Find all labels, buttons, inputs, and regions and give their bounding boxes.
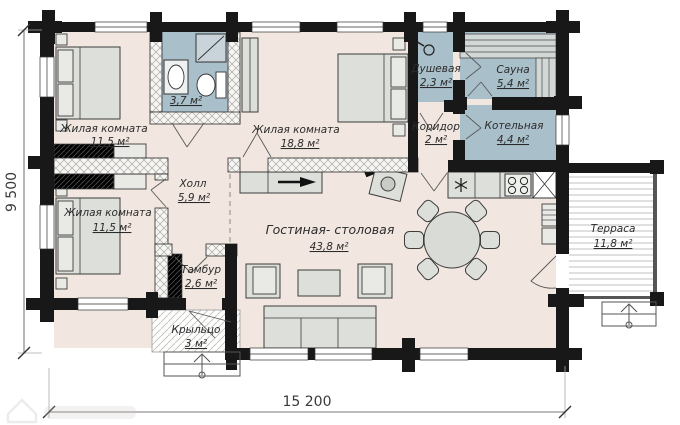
vestibule-label: Тамбур xyxy=(181,264,221,276)
shower-label: Душевая xyxy=(410,63,460,75)
dining-chair xyxy=(481,232,500,249)
armchair xyxy=(358,264,392,298)
corridor-label: Коридор xyxy=(412,121,460,133)
toilet-bowl xyxy=(197,74,215,96)
window xyxy=(78,298,128,310)
bedroom3-label: Жилая комната xyxy=(63,207,151,219)
bedroom1-label: Жилая комната xyxy=(59,123,147,135)
nightstand xyxy=(56,34,67,45)
shower-area: 2,3 м² xyxy=(420,77,453,89)
coffee-table xyxy=(298,270,340,296)
window xyxy=(556,115,569,145)
bed-bedroom1 xyxy=(56,34,120,131)
terrace-label: Терраса xyxy=(591,223,636,235)
bedroom2-area: 18,8 м² xyxy=(281,138,321,150)
bedroom2-label: Жилая комната xyxy=(251,124,339,136)
nightstand xyxy=(393,124,405,136)
bedroom3-area: 11,5 м² xyxy=(93,222,133,234)
bedroom1-area: 11,5 м² xyxy=(91,136,131,148)
window xyxy=(250,348,308,360)
armchair xyxy=(246,264,280,298)
dining-chair xyxy=(405,232,424,249)
bed-bedroom3 xyxy=(56,185,120,289)
pillow xyxy=(58,237,73,271)
floor-plan-drawing: Жилая комната 11,5 м² 3,7 м² Жилая комна… xyxy=(0,0,680,425)
sauna-label: Сауна xyxy=(496,64,529,76)
pillow xyxy=(58,84,73,116)
porch-label: Крыльцо xyxy=(172,324,221,336)
watermark xyxy=(8,400,136,422)
boiler-label: Котельная xyxy=(485,120,544,132)
kitchen-box xyxy=(542,228,558,244)
window xyxy=(315,348,372,360)
overall-height-dimension: 9 500 xyxy=(4,172,20,212)
hall-area: 5,9 м² xyxy=(178,192,211,204)
corridor-area: 2 м² xyxy=(425,134,448,146)
porch-area: 3 м² xyxy=(185,338,208,350)
bathroom-area: 3,7 м² xyxy=(170,95,203,107)
wardrobe-bedroom3 xyxy=(54,174,114,189)
window xyxy=(95,22,147,32)
vestibule-area: 2,6 м² xyxy=(185,278,218,290)
window xyxy=(423,22,447,32)
tv-sideboard xyxy=(240,172,322,193)
living-area: 43,8 м² xyxy=(310,241,350,253)
sofa xyxy=(264,306,376,348)
window xyxy=(420,348,468,360)
nightstand xyxy=(56,278,67,289)
sauna-area: 5,4 м² xyxy=(497,78,530,90)
dining-table xyxy=(424,212,480,268)
boiler-area: 4,4 м² xyxy=(497,134,530,146)
pillow xyxy=(58,50,73,82)
window xyxy=(252,22,300,32)
terrace-steps xyxy=(602,302,656,328)
pillow xyxy=(391,57,406,87)
living-label: Гостиная- столовая xyxy=(266,222,395,237)
hall-label: Холл xyxy=(178,178,206,190)
pillow xyxy=(391,89,406,119)
fridge-icon xyxy=(533,170,556,198)
window xyxy=(337,22,383,32)
toilet-tank xyxy=(216,72,226,98)
window xyxy=(40,57,54,97)
floor-plan-page: Жилая комната 11,5 м² 3,7 м² Жилая комна… xyxy=(0,0,680,425)
stove-icon xyxy=(505,174,531,196)
overall-width-dimension: 15 200 xyxy=(283,394,332,410)
nightstand xyxy=(393,38,405,50)
terrace-area: 11,8 м² xyxy=(594,238,634,250)
wardrobe-bedroom3-door xyxy=(114,174,146,189)
window xyxy=(40,205,54,249)
